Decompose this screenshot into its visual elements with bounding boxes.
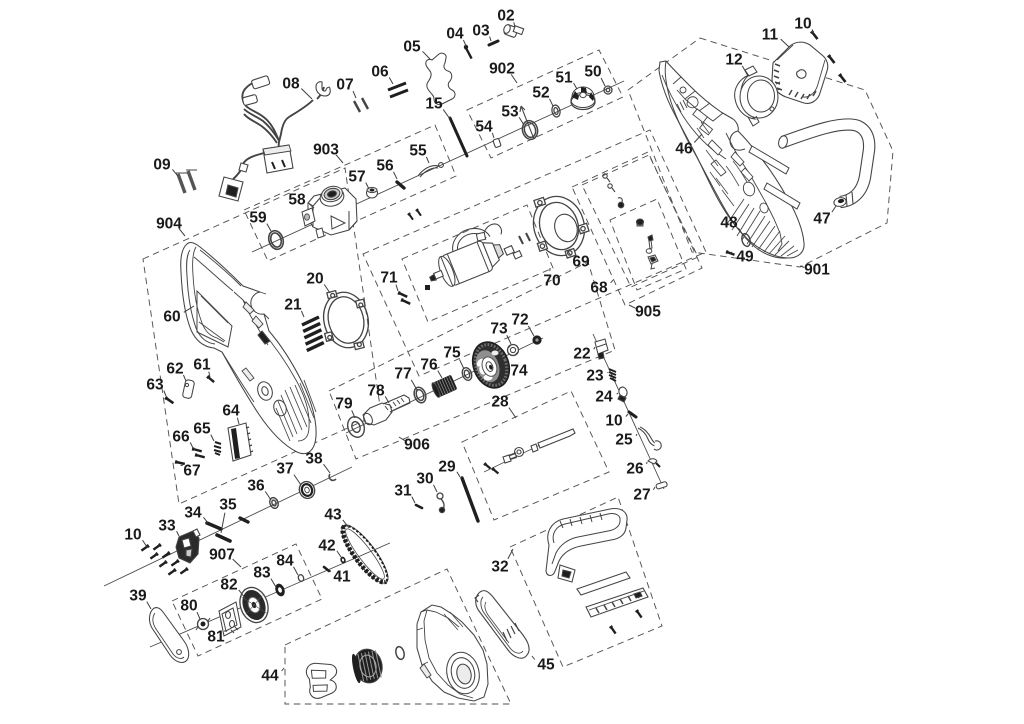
svg-text:44: 44 xyxy=(261,668,279,685)
svg-text:80: 80 xyxy=(180,598,197,615)
svg-text:02: 02 xyxy=(497,8,514,25)
svg-text:10: 10 xyxy=(124,527,141,544)
svg-text:63: 63 xyxy=(146,377,164,394)
svg-text:81: 81 xyxy=(207,629,225,646)
svg-text:46: 46 xyxy=(675,141,693,158)
svg-text:59: 59 xyxy=(249,210,267,227)
svg-text:39: 39 xyxy=(129,588,147,605)
svg-text:41: 41 xyxy=(333,569,351,586)
svg-text:54: 54 xyxy=(475,119,493,136)
svg-text:21: 21 xyxy=(284,297,302,314)
svg-text:83: 83 xyxy=(253,565,271,582)
svg-text:69: 69 xyxy=(572,254,590,271)
svg-text:42: 42 xyxy=(318,538,335,555)
svg-text:38: 38 xyxy=(305,451,323,468)
svg-text:79: 79 xyxy=(335,396,353,413)
svg-text:75: 75 xyxy=(443,345,461,362)
svg-text:904: 904 xyxy=(156,216,182,233)
svg-text:907: 907 xyxy=(209,547,235,564)
svg-text:51: 51 xyxy=(555,70,573,87)
svg-text:78: 78 xyxy=(367,383,385,400)
svg-text:76: 76 xyxy=(420,357,438,374)
svg-text:10: 10 xyxy=(605,413,622,430)
svg-text:66: 66 xyxy=(172,429,190,446)
svg-text:50: 50 xyxy=(584,64,601,81)
svg-text:11: 11 xyxy=(762,27,779,44)
svg-text:07: 07 xyxy=(336,77,353,94)
svg-text:57: 57 xyxy=(348,169,365,186)
svg-text:05: 05 xyxy=(403,39,421,56)
svg-text:34: 34 xyxy=(184,505,202,522)
svg-text:52: 52 xyxy=(532,85,549,102)
svg-text:77: 77 xyxy=(394,366,411,383)
svg-text:24: 24 xyxy=(595,389,613,406)
svg-text:906: 906 xyxy=(404,437,430,454)
svg-text:74: 74 xyxy=(510,363,528,380)
svg-text:25: 25 xyxy=(615,432,633,449)
svg-text:82: 82 xyxy=(220,577,237,594)
svg-text:73: 73 xyxy=(490,321,508,338)
svg-text:67: 67 xyxy=(183,463,200,480)
svg-text:48: 48 xyxy=(720,215,738,232)
svg-text:61: 61 xyxy=(193,357,211,374)
svg-text:49: 49 xyxy=(736,249,754,266)
svg-text:03: 03 xyxy=(472,23,490,40)
svg-text:33: 33 xyxy=(158,518,176,535)
svg-text:70: 70 xyxy=(543,273,560,290)
svg-text:84: 84 xyxy=(276,553,294,570)
svg-text:04: 04 xyxy=(446,26,464,43)
svg-text:45: 45 xyxy=(537,657,555,674)
svg-text:27: 27 xyxy=(633,487,650,504)
svg-text:65: 65 xyxy=(193,421,211,438)
svg-text:56: 56 xyxy=(376,158,394,175)
svg-text:901: 901 xyxy=(804,262,830,279)
svg-text:06: 06 xyxy=(371,64,389,81)
svg-text:68: 68 xyxy=(590,280,608,297)
svg-text:26: 26 xyxy=(626,461,644,478)
svg-text:60: 60 xyxy=(163,309,180,326)
svg-text:12: 12 xyxy=(725,52,742,69)
svg-text:43: 43 xyxy=(324,507,342,524)
svg-text:47: 47 xyxy=(813,211,830,228)
svg-text:20: 20 xyxy=(306,271,323,288)
svg-text:29: 29 xyxy=(438,459,456,476)
svg-text:10: 10 xyxy=(794,16,811,33)
svg-text:36: 36 xyxy=(247,478,265,495)
svg-text:905: 905 xyxy=(635,304,661,321)
svg-text:903: 903 xyxy=(313,142,339,159)
svg-text:53: 53 xyxy=(501,104,519,121)
svg-text:09: 09 xyxy=(153,157,171,174)
svg-text:55: 55 xyxy=(409,143,427,160)
svg-text:31: 31 xyxy=(394,483,412,500)
svg-text:58: 58 xyxy=(288,192,306,209)
svg-text:37: 37 xyxy=(276,461,293,478)
svg-text:23: 23 xyxy=(586,368,604,385)
svg-text:30: 30 xyxy=(416,471,433,488)
svg-text:64: 64 xyxy=(222,403,240,420)
svg-text:72: 72 xyxy=(511,312,528,329)
svg-text:15: 15 xyxy=(425,96,443,113)
svg-text:32: 32 xyxy=(491,559,508,576)
svg-text:71: 71 xyxy=(380,270,398,287)
svg-text:22: 22 xyxy=(573,346,590,363)
svg-text:62: 62 xyxy=(166,361,183,378)
svg-text:08: 08 xyxy=(282,76,300,93)
svg-text:35: 35 xyxy=(219,497,237,514)
svg-text:28: 28 xyxy=(491,394,509,411)
